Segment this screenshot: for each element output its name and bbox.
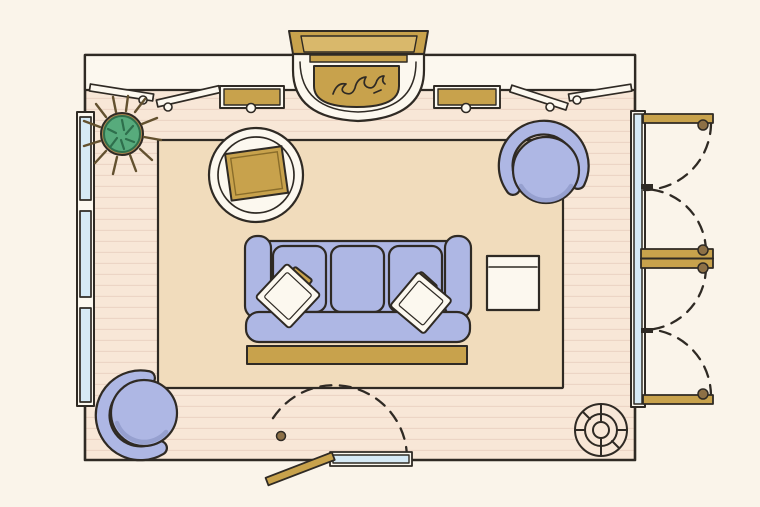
door-swing-arc xyxy=(644,123,711,190)
door-swing-arc xyxy=(644,267,706,330)
cabinet-knob xyxy=(164,103,172,111)
firebox xyxy=(314,66,399,107)
cabinet-knob xyxy=(546,103,554,111)
fireplace xyxy=(289,31,428,121)
cabinet-knob xyxy=(573,96,581,104)
door-knob xyxy=(277,432,286,441)
door-swing-arc xyxy=(644,189,706,251)
sofa-cushion xyxy=(331,246,384,312)
chair-seat xyxy=(513,137,579,203)
door-swing-arc xyxy=(644,329,711,396)
fireplace-shelf xyxy=(310,55,407,62)
sofa xyxy=(245,236,471,342)
door-hinge xyxy=(698,245,708,255)
round-side-table xyxy=(209,128,303,222)
floor-plan-illustration xyxy=(0,0,760,507)
french-doors-right xyxy=(631,111,713,407)
drawer-knob xyxy=(247,104,256,113)
window-pane xyxy=(80,308,91,402)
drawer-gold-front xyxy=(224,89,280,105)
chair-seat xyxy=(111,380,177,446)
door-meeting-tick xyxy=(641,184,653,189)
door-hinge xyxy=(698,263,708,273)
door-meeting-tick xyxy=(641,328,653,333)
sofa-arm-right xyxy=(445,236,471,318)
ceiling-fixture-symbol xyxy=(575,404,627,456)
fireplace-mantel-top xyxy=(301,36,417,52)
door-hinge xyxy=(698,389,708,399)
window-pane xyxy=(80,117,91,200)
drawer-gold-front xyxy=(438,89,496,105)
square-side-table xyxy=(487,256,539,310)
door-hinge xyxy=(698,120,708,130)
armchair-top-right xyxy=(506,128,582,203)
floor-plan-svg xyxy=(0,0,760,507)
door-threshold xyxy=(333,455,409,463)
window-pane xyxy=(80,211,91,297)
coffee-bench xyxy=(247,346,467,364)
drawer-knob xyxy=(462,104,471,113)
side-table-top xyxy=(487,256,539,310)
windows-left xyxy=(77,112,94,406)
